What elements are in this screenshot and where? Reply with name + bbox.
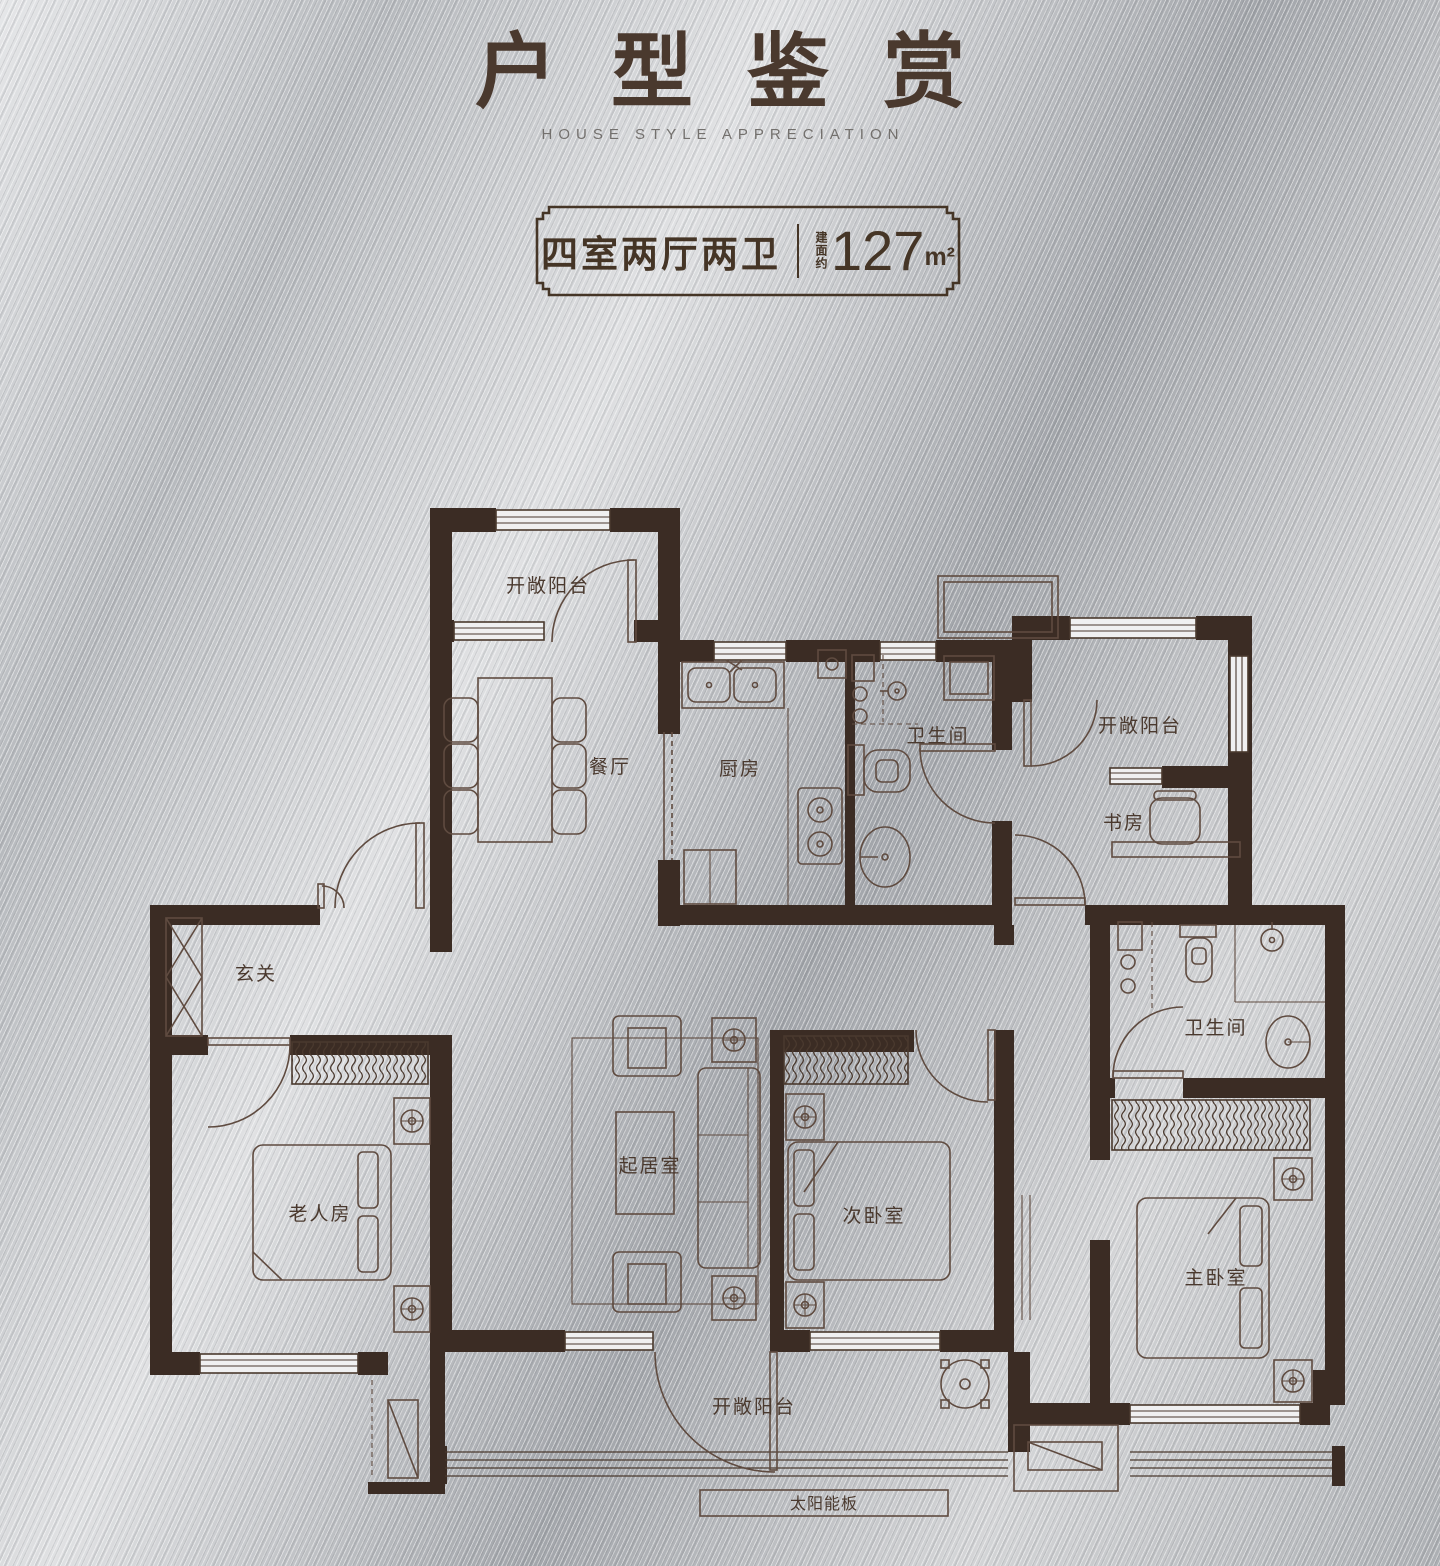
badge-divider [797, 224, 799, 278]
door-balcony-top-left [552, 560, 636, 642]
window-balcony-tl-top [496, 510, 610, 530]
window-balcony-tr-side [1230, 656, 1248, 752]
page-subtitle: HOUSE STYLE APPRECIATION [6, 126, 1440, 143]
windows [200, 510, 1332, 1476]
label-master-bedroom: 主卧室 [1184, 1267, 1247, 1289]
floor-plan-poster: 户型鉴赏 HOUSE STYLE APPRECIATION 四室两厅两卫 建面约… [0, 0, 1440, 1566]
unit-info-badge: 四室两厅两卫 建面约 127 m² [533, 203, 963, 299]
label-balcony-bottom: 开敞阳台 [712, 1396, 796, 1418]
window-band-balcony-bottom [445, 1452, 1008, 1476]
layout-type-label: 四室两厅两卫 [541, 224, 781, 278]
floor-plan: 开敞阳台 餐厅 厨房 卫生间 开敞阳台 书房 玄关 老人房 起居室 次卧室 卫生… [145, 475, 1345, 1535]
master-bedroom-furniture [1112, 1100, 1312, 1402]
door-balcony-top-right [1024, 700, 1097, 766]
label-master-bathroom: 卫生间 [1184, 1017, 1247, 1039]
label-living-room: 起居室 [618, 1155, 681, 1177]
label-dining-room: 餐厅 [589, 756, 631, 778]
balcony-washer [941, 1360, 989, 1408]
window-living [565, 1332, 653, 1350]
page-title: 户型鉴赏 [54, 26, 1440, 120]
area-unit: m² [924, 243, 955, 276]
label-elder-room: 老人房 [288, 1203, 351, 1225]
window-elder-room [200, 1354, 358, 1373]
equipment-platform-left [372, 1380, 418, 1478]
furniture [253, 650, 1325, 1408]
door-bathroom [920, 744, 995, 823]
label-kitchen: 厨房 [719, 758, 761, 780]
label-balcony-top-left: 开敞阳台 [506, 575, 590, 597]
door-study [1015, 835, 1085, 905]
window-bathroom [880, 642, 936, 660]
window-second-bedroom [810, 1332, 940, 1350]
label-study: 书房 [1103, 812, 1145, 834]
window-study-divider [1110, 768, 1162, 784]
door-master-bathroom [1113, 1007, 1183, 1078]
master-bathroom-fixtures [1118, 922, 1325, 1068]
area-group: 建面约 127 m² [815, 226, 955, 276]
door-main-entry [318, 823, 424, 908]
kitchen-fixtures [682, 650, 846, 905]
duct-closet-lines [1022, 1195, 1030, 1320]
area-value: 127 [831, 226, 924, 276]
label-bathroom: 卫生间 [906, 725, 969, 747]
window-master-bedroom [1130, 1405, 1300, 1423]
label-entry: 玄关 [235, 963, 277, 985]
door-second-bedroom [916, 1030, 995, 1102]
doors [208, 560, 1183, 1472]
header: 户型鉴赏 HOUSE STYLE APPRECIATION [0, 26, 1440, 143]
dining-set [444, 678, 586, 842]
label-solar-panel: 太阳能板 [790, 1495, 858, 1513]
window-balcony-tr-top [1070, 618, 1196, 638]
window-kitchen [714, 642, 786, 660]
door-kitchen-sliding [664, 732, 672, 860]
door-elder-room [208, 1038, 290, 1127]
window-band-master-bay [1130, 1452, 1332, 1476]
second-bedroom-furniture [784, 1036, 950, 1328]
bathroom-fixtures [848, 655, 994, 887]
area-prefix: 建面约 [815, 231, 827, 270]
window-balcony-tl-bottom [454, 622, 544, 640]
label-second-bedroom: 次卧室 [842, 1205, 905, 1227]
label-balcony-top-right: 开敞阳台 [1098, 715, 1182, 737]
